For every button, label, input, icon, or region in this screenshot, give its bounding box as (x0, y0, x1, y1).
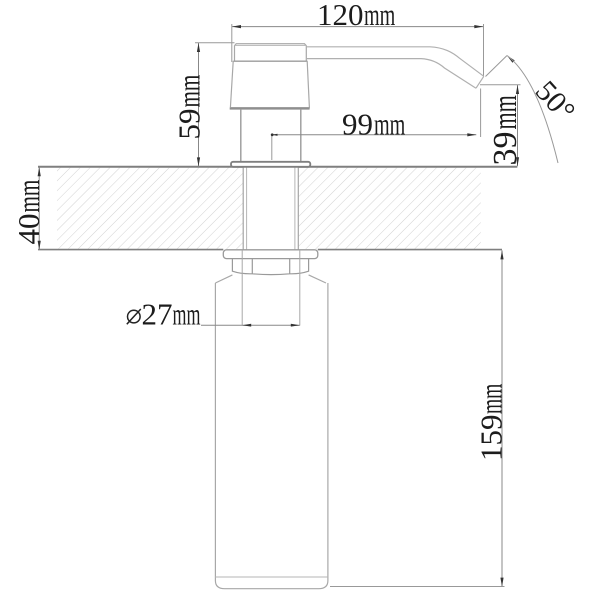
svg-text:mm: mm (486, 95, 524, 129)
svg-text:mm: mm (374, 107, 405, 141)
svg-text:mm: mm (11, 179, 46, 212)
svg-text:99: 99 (342, 107, 373, 142)
svg-text:mm: mm (173, 298, 201, 332)
svg-text:mm: mm (171, 74, 206, 107)
svg-text:120: 120 (317, 0, 364, 32)
svg-text:27: 27 (142, 297, 173, 332)
svg-text:159: 159 (474, 415, 509, 462)
svg-text:mm: mm (364, 0, 395, 32)
svg-text:59: 59 (172, 109, 207, 140)
svg-text:39: 39 (487, 132, 524, 166)
svg-text:40: 40 (11, 214, 46, 245)
svg-text:mm: mm (474, 384, 509, 414)
